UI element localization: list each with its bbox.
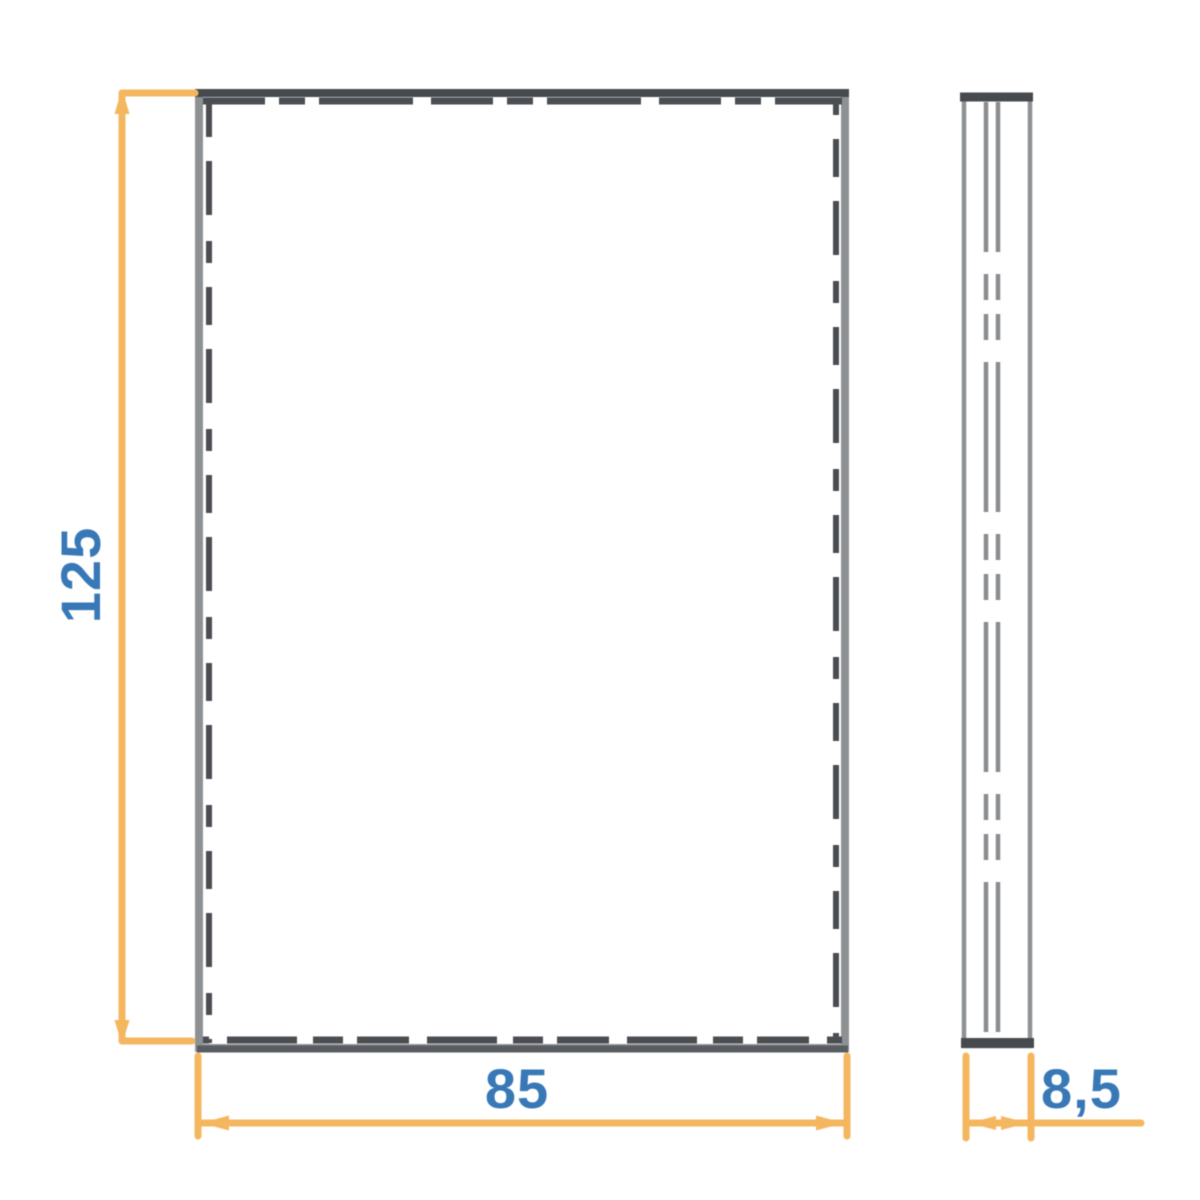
height-dimension-label: 125 <box>49 527 112 623</box>
side-view <box>960 96 1034 1046</box>
depth-dimension-label: 8,5 <box>1041 1057 1122 1120</box>
width-dimension-arrow-left <box>201 1116 229 1131</box>
height-dimension-line <box>122 93 195 1041</box>
depth-dimension-arrow-right <box>1001 1116 1028 1130</box>
depth-dimension-arrow-left <box>969 1116 996 1130</box>
front-view-outline <box>199 93 845 1048</box>
width-dimension-label: 85 <box>485 1057 549 1120</box>
front-view <box>195 93 849 1049</box>
technical-drawing: 125 85 8,5 <box>0 0 1200 1200</box>
depth-dimension: 8,5 <box>966 1056 1141 1138</box>
height-dimension: 125 <box>49 89 195 1045</box>
drawing-canvas: 125 85 8,5 <box>0 0 1200 1200</box>
width-dimension-arrow-right <box>816 1116 844 1131</box>
width-dimension: 85 <box>198 1056 847 1136</box>
